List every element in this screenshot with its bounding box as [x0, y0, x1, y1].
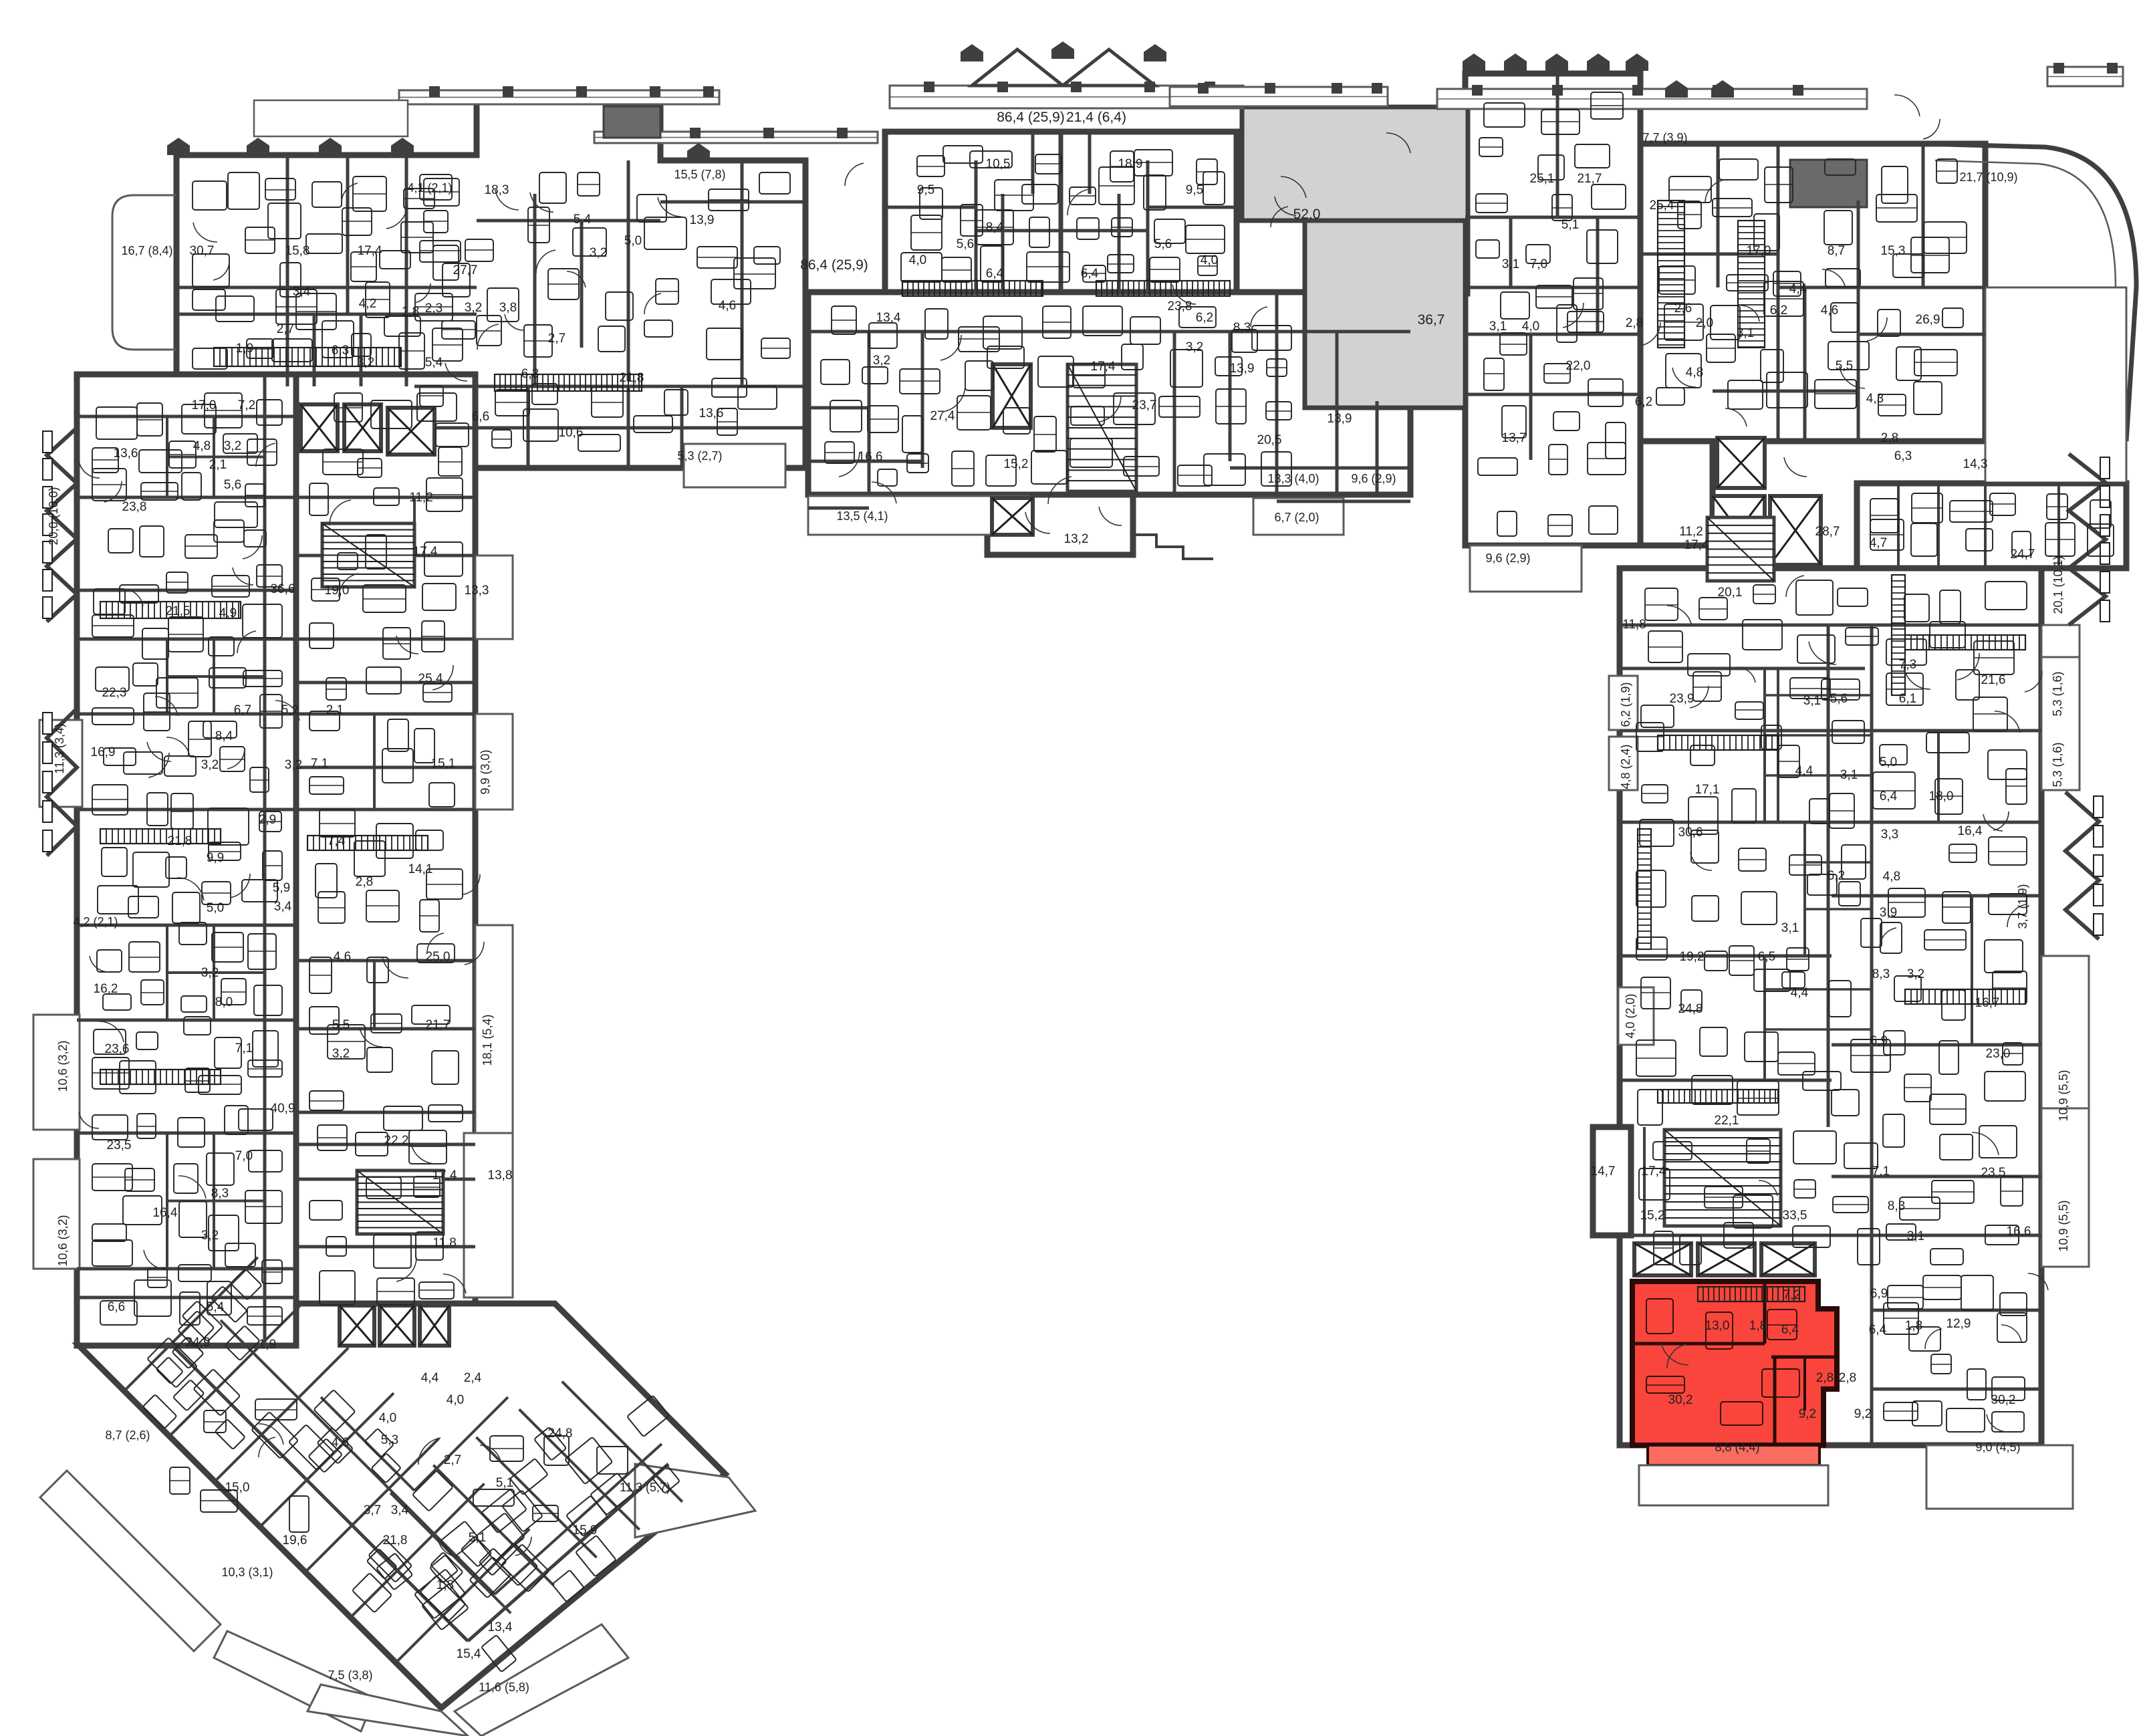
svg-text:7,1: 7,1 [1872, 1164, 1890, 1179]
svg-text:23,0: 23,0 [1986, 1047, 2011, 1061]
svg-text:2,0: 2,0 [1696, 316, 1713, 330]
svg-text:6,4: 6,4 [1081, 267, 1099, 281]
svg-text:5,6: 5,6 [1154, 237, 1172, 251]
svg-text:21,5: 21,5 [166, 604, 191, 618]
svg-text:6,9: 6,9 [1870, 1034, 1888, 1048]
svg-text:10,9 (5,5): 10,9 (5,5) [2057, 1200, 2070, 1251]
svg-text:2,4: 2,4 [464, 1371, 482, 1385]
svg-text:4,3: 4,3 [1866, 392, 1884, 406]
svg-text:15,9: 15,9 [573, 1523, 598, 1537]
svg-text:9,6 (2,9): 9,6 (2,9) [1351, 472, 1396, 485]
svg-text:4,6: 4,6 [332, 1436, 349, 1450]
svg-text:15,0: 15,0 [225, 1481, 250, 1495]
svg-text:13,9: 13,9 [690, 213, 715, 227]
svg-text:4,6: 4,6 [719, 299, 736, 313]
svg-text:7,5 (3,8): 7,5 (3,8) [328, 1668, 372, 1682]
svg-text:21,8: 21,8 [620, 371, 644, 385]
svg-text:1,9: 1,9 [259, 1338, 276, 1352]
svg-text:10,3 (3,1): 10,3 (3,1) [221, 1566, 273, 1579]
svg-text:11,8: 11,8 [432, 1236, 457, 1250]
svg-text:16,6: 16,6 [858, 450, 883, 464]
svg-text:33,5: 33,5 [1783, 1209, 1807, 1223]
svg-text:2,8: 2,8 [1839, 1371, 1856, 1385]
svg-text:8,7: 8,7 [1828, 244, 1845, 258]
svg-text:4,0: 4,0 [379, 1411, 396, 1425]
svg-text:8,3: 8,3 [1872, 967, 1890, 981]
svg-text:8,7 (2,6): 8,7 (2,6) [105, 1429, 150, 1442]
svg-text:4,0: 4,0 [1201, 253, 1218, 267]
svg-text:6,7: 6,7 [234, 703, 251, 717]
svg-text:5,0: 5,0 [624, 234, 642, 248]
svg-text:5,4: 5,4 [574, 213, 592, 227]
svg-text:4,2 (2,1): 4,2 (2,1) [73, 915, 118, 928]
svg-text:10,6: 10,6 [559, 426, 584, 440]
svg-text:18,3: 18,3 [485, 183, 509, 197]
svg-text:15,2: 15,2 [1004, 457, 1029, 471]
svg-text:24,8: 24,8 [548, 1427, 573, 1441]
svg-text:18,1 (5,4): 18,1 (5,4) [481, 1014, 494, 1066]
svg-text:9,2: 9,2 [1799, 1407, 1816, 1421]
svg-text:4,8: 4,8 [1686, 366, 1703, 380]
svg-text:8,4: 8,4 [986, 221, 1004, 235]
svg-text:11,8: 11,8 [1622, 618, 1646, 632]
svg-text:13,4: 13,4 [488, 1620, 513, 1634]
svg-text:9,9: 9,9 [207, 851, 224, 865]
svg-text:20,5: 20,5 [1257, 433, 1282, 447]
svg-text:22,0: 22,0 [1566, 359, 1591, 373]
svg-text:11,6 (5,8): 11,6 (5,8) [479, 1681, 529, 1694]
svg-text:9,5: 9,5 [917, 183, 934, 197]
svg-text:23,7: 23,7 [1132, 398, 1157, 412]
svg-text:1,8: 1,8 [402, 305, 419, 319]
svg-text:52,0: 52,0 [1293, 207, 1321, 222]
svg-text:2,8: 2,8 [1816, 1371, 1834, 1385]
svg-text:3,2: 3,2 [873, 354, 890, 368]
svg-text:13,9: 13,9 [1230, 362, 1255, 376]
svg-text:9,2: 9,2 [1854, 1407, 1872, 1421]
svg-text:3,2: 3,2 [357, 356, 374, 370]
svg-text:12,9: 12,9 [1946, 1317, 1971, 1331]
svg-text:17,4: 17,4 [358, 244, 382, 258]
svg-text:5,3 (2,7): 5,3 (2,7) [677, 449, 722, 463]
svg-text:5,0: 5,0 [1880, 755, 1897, 769]
svg-text:5,4: 5,4 [207, 1300, 225, 1314]
svg-text:3,2: 3,2 [1907, 967, 1924, 981]
svg-text:1,9: 1,9 [236, 342, 253, 356]
svg-text:2,1: 2,1 [209, 458, 227, 472]
svg-text:2,1: 2,1 [326, 703, 344, 717]
svg-text:7,0: 7,0 [235, 1149, 253, 1163]
svg-text:6,2: 6,2 [1196, 311, 1213, 325]
svg-text:40,9: 40,9 [271, 1102, 295, 1116]
svg-text:7,4: 7,4 [328, 834, 346, 848]
svg-text:6,4: 6,4 [1880, 789, 1898, 803]
svg-text:4,9: 4,9 [219, 606, 237, 620]
svg-text:17,4: 17,4 [413, 545, 438, 559]
svg-text:21,7 (10,9): 21,7 (10,9) [1959, 170, 2017, 184]
svg-text:5,9: 5,9 [273, 881, 290, 895]
svg-text:8,3: 8,3 [1233, 321, 1251, 335]
svg-text:13,4: 13,4 [876, 311, 901, 325]
svg-text:4,0 (2,0): 4,0 (2,0) [1624, 993, 1637, 1038]
svg-text:13,3 (4,0): 13,3 (4,0) [1267, 472, 1319, 485]
svg-text:8,4: 8,4 [215, 729, 233, 743]
svg-text:21,6: 21,6 [1981, 673, 2006, 687]
svg-text:19,6: 19,6 [283, 1533, 307, 1547]
svg-text:4,8: 4,8 [1883, 870, 1900, 884]
svg-text:15,3: 15,3 [1881, 244, 1906, 258]
svg-text:4,6: 4,6 [334, 950, 351, 964]
svg-text:4,8 (2,4): 4,8 (2,4) [1619, 744, 1632, 789]
svg-text:7,2: 7,2 [238, 398, 255, 412]
svg-text:10,6 (3,2): 10,6 (3,2) [56, 1215, 70, 1266]
svg-text:3,7: 3,7 [364, 1503, 381, 1517]
svg-text:24,7: 24,7 [2011, 547, 2035, 562]
svg-text:20,1 (10,1): 20,1 (10,1) [2051, 555, 2065, 614]
svg-text:3,2: 3,2 [590, 246, 607, 260]
svg-text:6,2: 6,2 [1828, 869, 1845, 883]
svg-text:16,9: 16,9 [91, 745, 116, 759]
svg-text:16,4: 16,4 [1958, 824, 1983, 838]
svg-text:36,7: 36,7 [1418, 312, 1445, 328]
svg-text:30,7: 30,7 [190, 244, 215, 258]
svg-text:23,8: 23,8 [122, 500, 147, 514]
svg-text:3,4: 3,4 [293, 285, 311, 299]
svg-text:13,7: 13,7 [1502, 431, 1527, 445]
svg-text:4,0: 4,0 [447, 1393, 464, 1407]
svg-text:6,3: 6,3 [332, 344, 349, 358]
svg-text:30,6: 30,6 [1678, 826, 1703, 840]
svg-text:3,1: 3,1 [1781, 921, 1799, 935]
svg-text:19,0: 19,0 [325, 584, 350, 598]
svg-text:5,3 (1,6): 5,3 (1,6) [2051, 671, 2064, 716]
svg-text:11,2: 11,2 [1679, 525, 1703, 539]
svg-text:15,5 (7,8): 15,5 (7,8) [674, 168, 725, 181]
svg-text:7,1: 7,1 [311, 757, 328, 771]
svg-text:16,6: 16,6 [2007, 1225, 2031, 1239]
svg-text:13,8: 13,8 [488, 1168, 513, 1183]
svg-text:5,2: 5,2 [281, 703, 299, 717]
svg-text:13,5 (4,1): 13,5 (4,1) [836, 509, 888, 523]
svg-text:16,7: 16,7 [1975, 996, 2000, 1010]
svg-text:16,4: 16,4 [153, 1206, 178, 1220]
svg-text:17,0: 17,0 [192, 398, 217, 412]
svg-text:3,2: 3,2 [332, 1047, 350, 1061]
svg-text:19,2: 19,2 [1680, 950, 1705, 964]
svg-text:4,6: 4,6 [1821, 303, 1838, 318]
svg-text:4,4: 4,4 [421, 1371, 439, 1385]
svg-text:9,5: 9,5 [1186, 183, 1203, 197]
svg-text:16,2: 16,2 [94, 982, 118, 996]
svg-text:3,2: 3,2 [224, 439, 241, 453]
svg-text:5,1: 5,1 [496, 1476, 513, 1490]
svg-text:1,8: 1,8 [1905, 1319, 1922, 1333]
svg-text:21,7: 21,7 [1578, 172, 1602, 186]
svg-text:9,0 (4,5): 9,0 (4,5) [1975, 1441, 2020, 1454]
svg-text:4,2: 4,2 [359, 297, 376, 311]
svg-text:1,3: 1,3 [436, 1578, 454, 1592]
svg-text:3,2: 3,2 [285, 758, 302, 772]
svg-text:22,1: 22,1 [1715, 1114, 1739, 1128]
svg-text:23,9: 23,9 [1670, 692, 1694, 706]
svg-text:3,1: 3,1 [1489, 320, 1507, 334]
svg-text:13,6: 13,6 [114, 447, 138, 461]
svg-text:22,3: 22,3 [102, 686, 127, 700]
svg-text:21,7: 21,7 [426, 1018, 451, 1032]
svg-text:7,3: 7,3 [1899, 658, 1916, 672]
svg-text:17,1: 17,1 [1695, 783, 1720, 797]
svg-text:6,9: 6,9 [1870, 1287, 1888, 1301]
svg-text:15,2: 15,2 [1640, 1209, 1665, 1223]
svg-text:6,2 (1,9): 6,2 (1,9) [1619, 682, 1632, 727]
svg-text:5,5: 5,5 [332, 1018, 350, 1032]
svg-text:22,2: 22,2 [384, 1134, 409, 1148]
svg-text:86,4 (25,9): 86,4 (25,9) [997, 110, 1065, 125]
svg-text:24,8: 24,8 [1678, 1002, 1703, 1016]
svg-text:2,9: 2,9 [259, 813, 276, 827]
svg-text:24,9: 24,9 [186, 1336, 211, 1350]
svg-text:15,8: 15,8 [285, 244, 310, 258]
svg-text:8,3: 8,3 [211, 1187, 229, 1201]
svg-text:17,4: 17,4 [1684, 538, 1709, 552]
svg-text:5,5: 5,5 [1836, 359, 1853, 373]
svg-text:2,7: 2,7 [548, 332, 565, 346]
svg-text:6,4: 6,4 [1781, 1323, 1799, 1337]
svg-text:20,1: 20,1 [1718, 586, 1743, 600]
svg-text:9,6 (2,9): 9,6 (2,9) [1485, 551, 1530, 565]
svg-text:4,0: 4,0 [1522, 320, 1539, 334]
svg-text:3,2: 3,2 [1186, 340, 1203, 354]
svg-text:23,5: 23,5 [1981, 1166, 2006, 1180]
svg-text:4,0: 4,0 [909, 253, 926, 267]
svg-text:7,1: 7,1 [235, 1041, 253, 1056]
svg-text:4,4: 4,4 [1795, 764, 1813, 778]
svg-text:15,1: 15,1 [431, 757, 456, 771]
svg-text:27,4: 27,4 [930, 409, 955, 423]
svg-text:3,2: 3,2 [465, 301, 482, 315]
svg-text:25,1: 25,1 [1530, 172, 1555, 186]
svg-text:20,0 (10,0): 20,0 (10,0) [47, 487, 60, 545]
svg-text:7,0: 7,0 [1530, 257, 1547, 271]
svg-text:11,3 (3,4): 11,3 (3,4) [53, 723, 66, 774]
svg-text:5,6: 5,6 [224, 478, 241, 492]
svg-text:25,0: 25,0 [426, 950, 451, 964]
svg-text:6,6: 6,6 [108, 1300, 125, 1314]
svg-text:3,4: 3,4 [274, 900, 292, 914]
svg-text:3,1: 3,1 [1502, 257, 1519, 271]
svg-text:30,2: 30,2 [1668, 1393, 1693, 1407]
svg-text:3,2: 3,2 [201, 966, 219, 980]
svg-text:13,9: 13,9 [1328, 412, 1352, 426]
svg-text:5,1: 5,1 [469, 1531, 486, 1545]
svg-text:4,7: 4,7 [1870, 536, 1887, 550]
svg-text:3,1: 3,1 [1907, 1229, 1924, 1243]
svg-text:6,7 (2,0): 6,7 (2,0) [1274, 511, 1319, 524]
svg-text:8,8 (4,4): 8,8 (4,4) [1715, 1441, 1759, 1454]
svg-text:26,9: 26,9 [1916, 313, 1940, 327]
svg-text:5,3: 5,3 [381, 1433, 398, 1447]
svg-text:13,3: 13,3 [465, 584, 489, 598]
svg-text:6,2: 6,2 [1770, 303, 1787, 318]
svg-text:13,6: 13,6 [699, 406, 724, 420]
svg-text:6,4: 6,4 [1869, 1323, 1887, 1337]
svg-text:6,6: 6,6 [472, 410, 489, 424]
svg-text:2,7: 2,7 [444, 1453, 461, 1467]
svg-text:5,1: 5,1 [1561, 218, 1579, 232]
svg-text:7,2: 7,2 [1783, 1288, 1801, 1302]
svg-text:9,9 (3,0): 9,9 (3,0) [479, 749, 492, 794]
svg-text:4,1 (2,1): 4,1 (2,1) [407, 181, 452, 195]
svg-text:1,8: 1,8 [1749, 1319, 1767, 1333]
svg-text:14,7: 14,7 [1591, 1164, 1616, 1179]
svg-text:16,7 (8,4): 16,7 (8,4) [121, 244, 172, 257]
svg-text:3,4: 3,4 [391, 1503, 409, 1517]
svg-text:5,0: 5,0 [207, 901, 224, 915]
svg-text:2,8: 2,8 [1626, 316, 1643, 330]
svg-text:4,4: 4,4 [1789, 282, 1807, 296]
svg-text:3,8: 3,8 [499, 301, 517, 315]
svg-text:14,3: 14,3 [1963, 457, 1988, 471]
svg-text:5,6: 5,6 [1830, 692, 1848, 706]
svg-text:23,6: 23,6 [105, 1042, 130, 1056]
svg-text:3,9: 3,9 [1880, 906, 1897, 920]
svg-text:6,5: 6,5 [1758, 950, 1775, 964]
svg-text:18,9: 18,9 [1118, 157, 1143, 171]
svg-text:27,7: 27,7 [453, 263, 478, 277]
svg-text:6,1: 6,1 [1899, 692, 1916, 706]
svg-text:3,1: 3,1 [1840, 768, 1858, 782]
svg-text:2,6: 2,6 [1674, 301, 1692, 316]
svg-text:7,7 (3,9): 7,7 (3,9) [1642, 131, 1687, 144]
svg-text:5,3 (1,6): 5,3 (1,6) [2051, 742, 2064, 787]
svg-text:10,9 (5,5): 10,9 (5,5) [2057, 1070, 2070, 1121]
svg-text:17,0: 17,0 [1747, 244, 1771, 258]
svg-text:14,1: 14,1 [408, 862, 433, 876]
svg-text:10,5: 10,5 [986, 157, 1011, 171]
svg-text:6,3: 6,3 [521, 367, 539, 381]
svg-text:25,4: 25,4 [1650, 199, 1674, 213]
svg-text:3,2: 3,2 [201, 758, 219, 772]
svg-text:18,0: 18,0 [1929, 789, 1954, 803]
svg-text:3,2: 3,2 [201, 1229, 219, 1243]
svg-text:17,4: 17,4 [1091, 360, 1116, 374]
svg-text:6,3: 6,3 [1894, 449, 1912, 463]
svg-text:25,4: 25,4 [418, 672, 443, 686]
svg-text:13,0: 13,0 [1705, 1319, 1730, 1333]
svg-text:23,5: 23,5 [107, 1138, 132, 1152]
svg-text:4,8: 4,8 [193, 439, 211, 453]
svg-text:10,6 (3,2): 10,6 (3,2) [56, 1040, 70, 1092]
svg-text:23,8: 23,8 [1168, 299, 1192, 314]
svg-text:11,3 (5,7): 11,3 (5,7) [620, 1481, 670, 1494]
svg-text:3,3: 3,3 [1881, 828, 1898, 842]
svg-text:3,1: 3,1 [1737, 326, 1754, 340]
svg-text:5,6: 5,6 [957, 237, 974, 251]
svg-text:86,4 (25,9): 86,4 (25,9) [800, 257, 868, 273]
svg-text:15,4: 15,4 [457, 1647, 481, 1661]
svg-text:2,8: 2,8 [1881, 431, 1898, 445]
svg-text:21,8: 21,8 [383, 1533, 408, 1547]
svg-text:28,7: 28,7 [1815, 525, 1840, 539]
svg-text:6,2: 6,2 [1635, 395, 1652, 409]
svg-text:2,7: 2,7 [277, 322, 294, 336]
svg-text:36,6: 36,6 [271, 582, 295, 596]
svg-text:3,1: 3,1 [1803, 694, 1821, 708]
svg-text:17,4: 17,4 [1642, 1164, 1666, 1179]
svg-text:2,3: 2,3 [425, 301, 443, 316]
svg-text:5,4: 5,4 [425, 356, 443, 370]
svg-text:4,4: 4,4 [1791, 986, 1809, 1000]
svg-text:2,8: 2,8 [356, 875, 373, 889]
svg-text:30,2: 30,2 [1991, 1393, 2016, 1407]
svg-text:21,8: 21,8 [168, 834, 193, 848]
svg-text:17,4: 17,4 [432, 1168, 457, 1183]
svg-text:8,3: 8,3 [1888, 1199, 1905, 1213]
svg-text:13,2: 13,2 [1064, 532, 1089, 546]
svg-text:21,4 (6,4): 21,4 (6,4) [1066, 110, 1126, 125]
svg-text:11,2: 11,2 [409, 491, 433, 505]
svg-text:6,4: 6,4 [986, 267, 1004, 281]
svg-text:8,0: 8,0 [215, 995, 233, 1009]
svg-text:3,7 (1,9): 3,7 (1,9) [2016, 884, 2029, 928]
